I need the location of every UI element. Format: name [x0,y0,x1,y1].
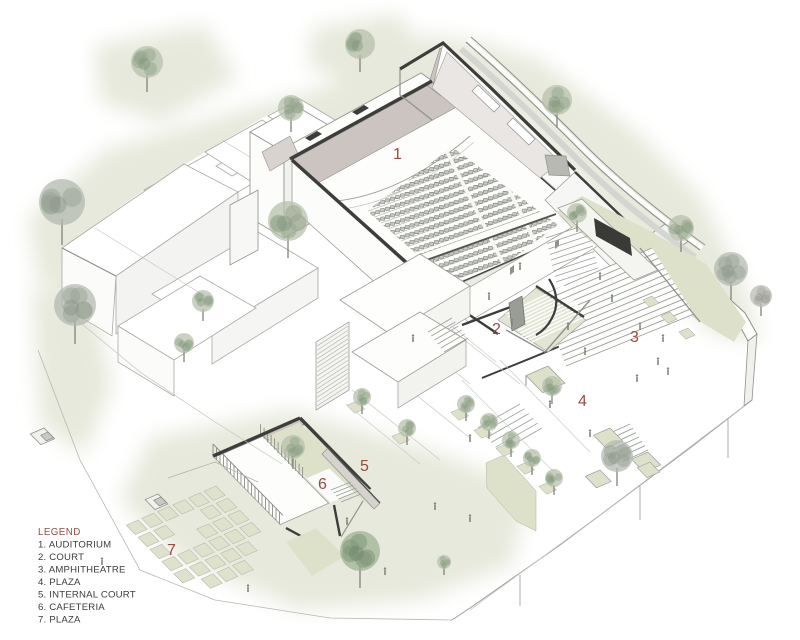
svg-text:LEGEND: LEGEND [38,527,81,538]
svg-text:5. INTERNAL COURT: 5. INTERNAL COURT [38,590,136,601]
svg-text:5: 5 [360,458,369,475]
svg-text:7: 7 [167,542,176,559]
svg-text:6. CAFETERIA: 6. CAFETERIA [38,602,105,613]
svg-text:1: 1 [393,146,402,163]
svg-text:2: 2 [492,321,501,338]
svg-text:4. PLAZA: 4. PLAZA [38,577,81,588]
svg-text:7. PLAZA: 7. PLAZA [38,615,81,626]
svg-text:6: 6 [318,476,327,493]
svg-text:2. COURT: 2. COURT [38,552,84,563]
svg-text:3. AMPHITHEATRE: 3. AMPHITHEATRE [38,565,126,576]
svg-text:3: 3 [630,329,639,346]
svg-text:4: 4 [578,393,587,410]
svg-text:1. AUDITORIUM: 1. AUDITORIUM [38,540,111,551]
